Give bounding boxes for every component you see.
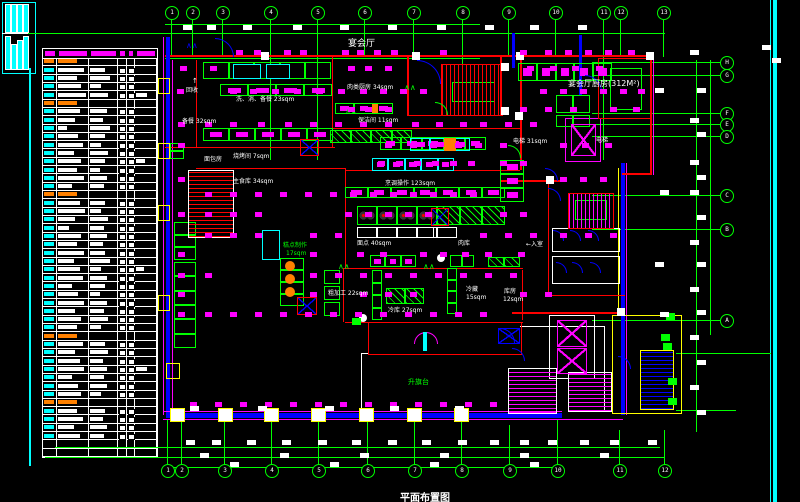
room-label: 宴会厅 [348,40,375,49]
table-cell [89,258,118,265]
dimension-text [690,335,699,340]
equipment-cell [500,188,524,202]
table-cell [89,382,118,389]
table-cell [89,407,118,414]
dimension-text [340,25,349,30]
table-cell [57,432,89,439]
table-cell [118,291,127,298]
equipment-tag [236,50,243,55]
dimension-text [243,25,252,30]
table-cell [89,83,118,90]
wall [512,312,622,314]
table-cell [127,199,135,206]
table-cell [57,166,89,173]
column-block [261,52,269,60]
table-cell [43,58,57,65]
equipment-tag [205,312,212,317]
table-cell [57,291,89,298]
wall-column-marker [158,78,170,94]
equipment-tag [205,192,212,197]
equipment-cell [170,151,184,159]
table-cell [118,91,127,98]
table-cell [135,249,157,256]
table-cell [135,199,157,206]
table-cell [135,241,157,248]
table-cell [118,341,127,348]
equipment-tag [258,122,265,127]
equipment-tag [335,122,342,127]
equipment-tag [284,50,291,55]
axis-bubble: 10 [549,6,563,20]
table-cell [135,324,157,331]
table-cell [57,382,89,389]
table-cell [89,349,118,356]
table-cell [43,166,57,173]
table-cell [57,75,89,82]
table-row [43,382,157,390]
table-cell [127,424,135,431]
table-cell [57,449,89,456]
equipment-cell [305,62,331,79]
table-row [43,66,157,74]
axis-bubble: 13 [657,6,671,20]
table-row [43,449,157,457]
table-cell [89,432,118,439]
table-cell [118,208,127,215]
equipment-tag [374,50,381,55]
table-cell [57,83,89,90]
grid-line-h [592,124,722,125]
equipment-tag [485,252,492,257]
equipment-tag [420,89,427,94]
equipment-tag [250,89,257,94]
dimension-text [762,45,771,50]
table-cell [118,125,127,132]
table-cell [43,158,57,165]
equipment-row [500,160,524,202]
equipment-tag [350,192,357,197]
table-cell [57,108,89,115]
table-cell [57,374,89,381]
table-cell [57,341,89,348]
table-cell [127,407,135,414]
equipment-cell [450,255,462,267]
axis-bubble: 12 [614,6,628,20]
equipment-tag [475,143,482,148]
table-cell [89,108,118,115]
table-cell [135,208,157,215]
table-cell [135,266,157,273]
table-row [43,332,157,340]
equipment-tag [527,66,534,71]
equipment-tag [255,192,262,197]
equipment-tag [520,161,527,166]
table-row [43,324,157,332]
table-cell [127,349,135,356]
room-label: 糕点制作 [283,243,307,249]
table-cell [127,166,135,173]
frame-left [29,68,31,466]
axis-bubble: 3 [218,464,232,478]
table-cell [57,133,89,140]
table-cell [127,415,135,422]
equipment-tag [316,89,323,94]
table-cell [118,299,127,306]
table-cell [89,274,118,281]
table-cell [43,149,57,156]
table-cell [57,266,89,273]
equipment-tag [215,402,222,407]
table-cell [118,116,127,123]
table-cell [57,216,89,223]
table-cell [127,374,135,381]
table-row [43,149,157,157]
table-cell [127,66,135,73]
equipment-cell [372,270,382,283]
axis-bubble: 2 [186,6,200,20]
table-cell [43,407,57,414]
dimension-text [772,58,781,63]
equipment-cell [401,255,416,267]
equipment-tag [430,192,437,197]
orange-item [372,104,378,113]
equipment-row [447,268,457,314]
equipment-tag [410,273,417,278]
table-cell [135,125,157,132]
table-cell [127,357,135,364]
axis-bubble: C [720,189,734,203]
table-cell [118,149,127,156]
equipment-tag [572,66,579,71]
equipment-tag [178,212,185,217]
axis-bubble: 6 [358,6,372,20]
door-arc [417,60,441,84]
table-cell [43,415,57,422]
table-cell [89,216,118,223]
table-cell [89,133,118,140]
table-cell [89,241,118,248]
staircase [188,170,234,238]
equipment-tag [230,212,237,217]
table-row [43,366,157,374]
grid-line-v [696,60,697,432]
table-cell [127,100,135,107]
table-cell [43,100,57,107]
dimension-text [697,310,706,315]
equipment-tag [596,66,603,71]
table-cell [43,316,57,323]
table-cell [57,424,89,431]
equipment-tag [255,212,262,217]
table-cell [118,191,127,198]
dimension-text [648,440,657,445]
table-cell [89,183,118,190]
equipment-tag [560,177,567,182]
dimension-text [230,462,239,467]
table-row [43,241,157,249]
table-cell [89,291,118,298]
table-row [43,374,157,382]
table-cell [118,224,127,231]
dimension-text [610,440,619,445]
table-cell [89,366,118,373]
equipment-tag [342,50,349,55]
grid-line-h [676,410,736,411]
equipment-cell [488,257,504,267]
equipment-tag [462,252,469,257]
table-cell [127,299,135,306]
room-label: 粗加工 22sqm [328,291,368,297]
equipment-tag [505,122,512,127]
table-cell [127,208,135,215]
equipment-tag [610,107,617,112]
dimension-text [183,25,192,30]
table-cell [57,208,89,215]
table-cell [135,374,157,381]
table-cell [89,316,118,323]
grid-line-v [181,420,182,470]
table-row [43,391,157,399]
table-cell [118,266,127,273]
equipment-tag [335,273,342,278]
equipment-tag [545,107,552,112]
equipment-tag [468,161,475,166]
dimension-text [282,440,291,445]
equipment-tag [178,292,185,297]
dimension-text [530,462,539,467]
table-cell [57,141,89,148]
table-cell [135,415,157,422]
table-cell [127,233,135,240]
equipment-row [370,255,416,267]
table-cell [135,166,157,173]
equipment-tag [505,233,512,238]
table-cell [135,91,157,98]
grid-line-v [461,420,462,470]
table-cell [89,66,118,73]
dimension-text [690,240,699,245]
table-cell [127,332,135,339]
axis-bubble: 11 [597,6,611,20]
table-cell [118,141,127,148]
fixture-circle [285,261,295,271]
equipment-tag [510,273,517,278]
equipment-tag [340,402,347,407]
table-cell [89,391,118,398]
table-cell [135,183,157,190]
column-block [617,308,625,316]
equipment-tag [391,50,398,55]
table-cell [135,382,157,389]
equipment-tag [460,273,467,278]
equipment-tag [390,192,397,197]
dimension-text [455,406,464,411]
equipment-cell [433,227,457,238]
table-cell [127,391,135,398]
table-row [43,108,157,116]
table-cell [57,407,89,414]
table-cell [89,191,118,198]
table-cell [118,58,127,65]
equipment-tag [294,89,301,94]
equipment-tag [520,212,527,217]
table-cell [57,58,89,65]
equipment-tag [432,161,439,166]
equipment-tag [435,273,442,278]
axis-bubble: 7 [407,6,421,20]
table-cell [127,58,135,65]
table-cell [89,399,118,406]
table-cell [89,174,118,181]
equipment-tag [210,66,217,71]
equipment-tag [440,50,447,55]
dimension-text [485,25,494,30]
dimension-text [690,287,699,292]
equipment-tag [490,402,497,407]
room-label: 电梯 [596,138,608,144]
table-cell [127,366,135,373]
table-cell [127,399,135,406]
dimension-text [697,262,706,267]
table-cell [127,266,135,273]
dimension-text [390,406,399,411]
table-cell [135,357,157,364]
table-cell [57,233,89,240]
equipment-tag [610,233,617,238]
axis-bubble: 1 [161,464,175,478]
table-row [43,125,157,133]
table-cell [43,332,57,339]
dimension-text [318,440,327,445]
column-block [412,52,420,60]
table-row [43,208,157,216]
door-arc [545,168,558,181]
table-cell [89,233,118,240]
table-row [43,199,157,207]
table-cell [43,432,57,439]
table-cell [135,332,157,339]
door-arc [512,348,525,361]
dimension-text [655,262,664,267]
equipment-tag [385,292,392,297]
frame-right-inner [773,0,777,502]
axis-bubble: 1 [165,6,179,20]
table-cell [118,108,127,115]
table-cell [43,341,57,348]
equipment-cell [397,227,417,238]
wall [545,295,625,296]
dimension-text [458,440,467,445]
equipment-tag [385,66,392,71]
axis-bubble: B [720,223,734,237]
equipment-tag [545,292,552,297]
table-cell [43,291,57,298]
table-cell [43,75,57,82]
grid-line-v [555,20,556,57]
column-marker [311,408,326,422]
axis-bubble: 4 [264,6,278,20]
column-marker [218,408,233,422]
equipment-tag [370,192,377,197]
table-row [43,291,157,299]
dimension-text [697,175,706,180]
table-cell [43,399,57,406]
table-cell [89,357,118,364]
equipment-tag [365,402,372,407]
table-cell [135,449,157,456]
equipment-tag [585,50,592,55]
table-header-cell [137,51,155,56]
equipment-tag [240,402,247,407]
table-cell [89,58,118,65]
shaft-x-box [557,320,587,347]
grid-line-v [318,420,319,470]
equipment-tag [178,143,185,148]
table-cell [127,91,135,98]
equipment-tag [414,161,421,166]
equipment-tag [310,252,317,257]
equipment-tag [450,161,457,166]
table-cell [127,83,135,90]
equipment-tag [520,107,527,112]
axis-bubble: 5 [311,6,325,20]
table-cell [118,216,127,223]
room-label: 冷库 27sqm [388,308,422,314]
table-cell [135,399,157,406]
equipment-tag [230,89,237,94]
equipment-tag [560,89,567,94]
equipment-tag [560,143,567,148]
equipment-tag [285,122,292,127]
room-label: 肉库 [458,241,470,247]
table-row [43,183,157,191]
equipment-tag [485,273,492,278]
equipment-tag [585,233,592,238]
table-row [43,282,157,290]
table-cell [89,299,118,306]
table-row [43,357,157,365]
equipment-tag [436,122,443,127]
equipment-tag [430,143,437,148]
table-cell [43,324,57,331]
equipment-tag [550,66,557,71]
axis-bubble: G [720,69,734,83]
grid-line-v [710,60,711,335]
equipment-tag [470,192,477,197]
equipment-tag [230,312,237,317]
equipment-tag [480,233,487,238]
axis-bubble: 8 [456,6,470,20]
table-cell [135,274,157,281]
table-cell [135,432,157,439]
column-marker [170,408,185,422]
grid-line-v [367,420,368,470]
table-cell [118,424,127,431]
room-label: ←入室 [526,242,543,248]
grid-line-v [414,420,415,470]
equipment-tag [385,143,392,148]
equipment-cell [385,255,400,267]
table-row [43,407,157,415]
axis-bubble: 5 [312,464,326,478]
dimension-text [660,312,669,317]
equipment-tag [638,89,645,94]
table-cell [43,299,57,306]
table-cell [135,133,157,140]
table-row [43,174,157,182]
dimension-text [388,25,397,30]
table-cell [43,216,57,223]
